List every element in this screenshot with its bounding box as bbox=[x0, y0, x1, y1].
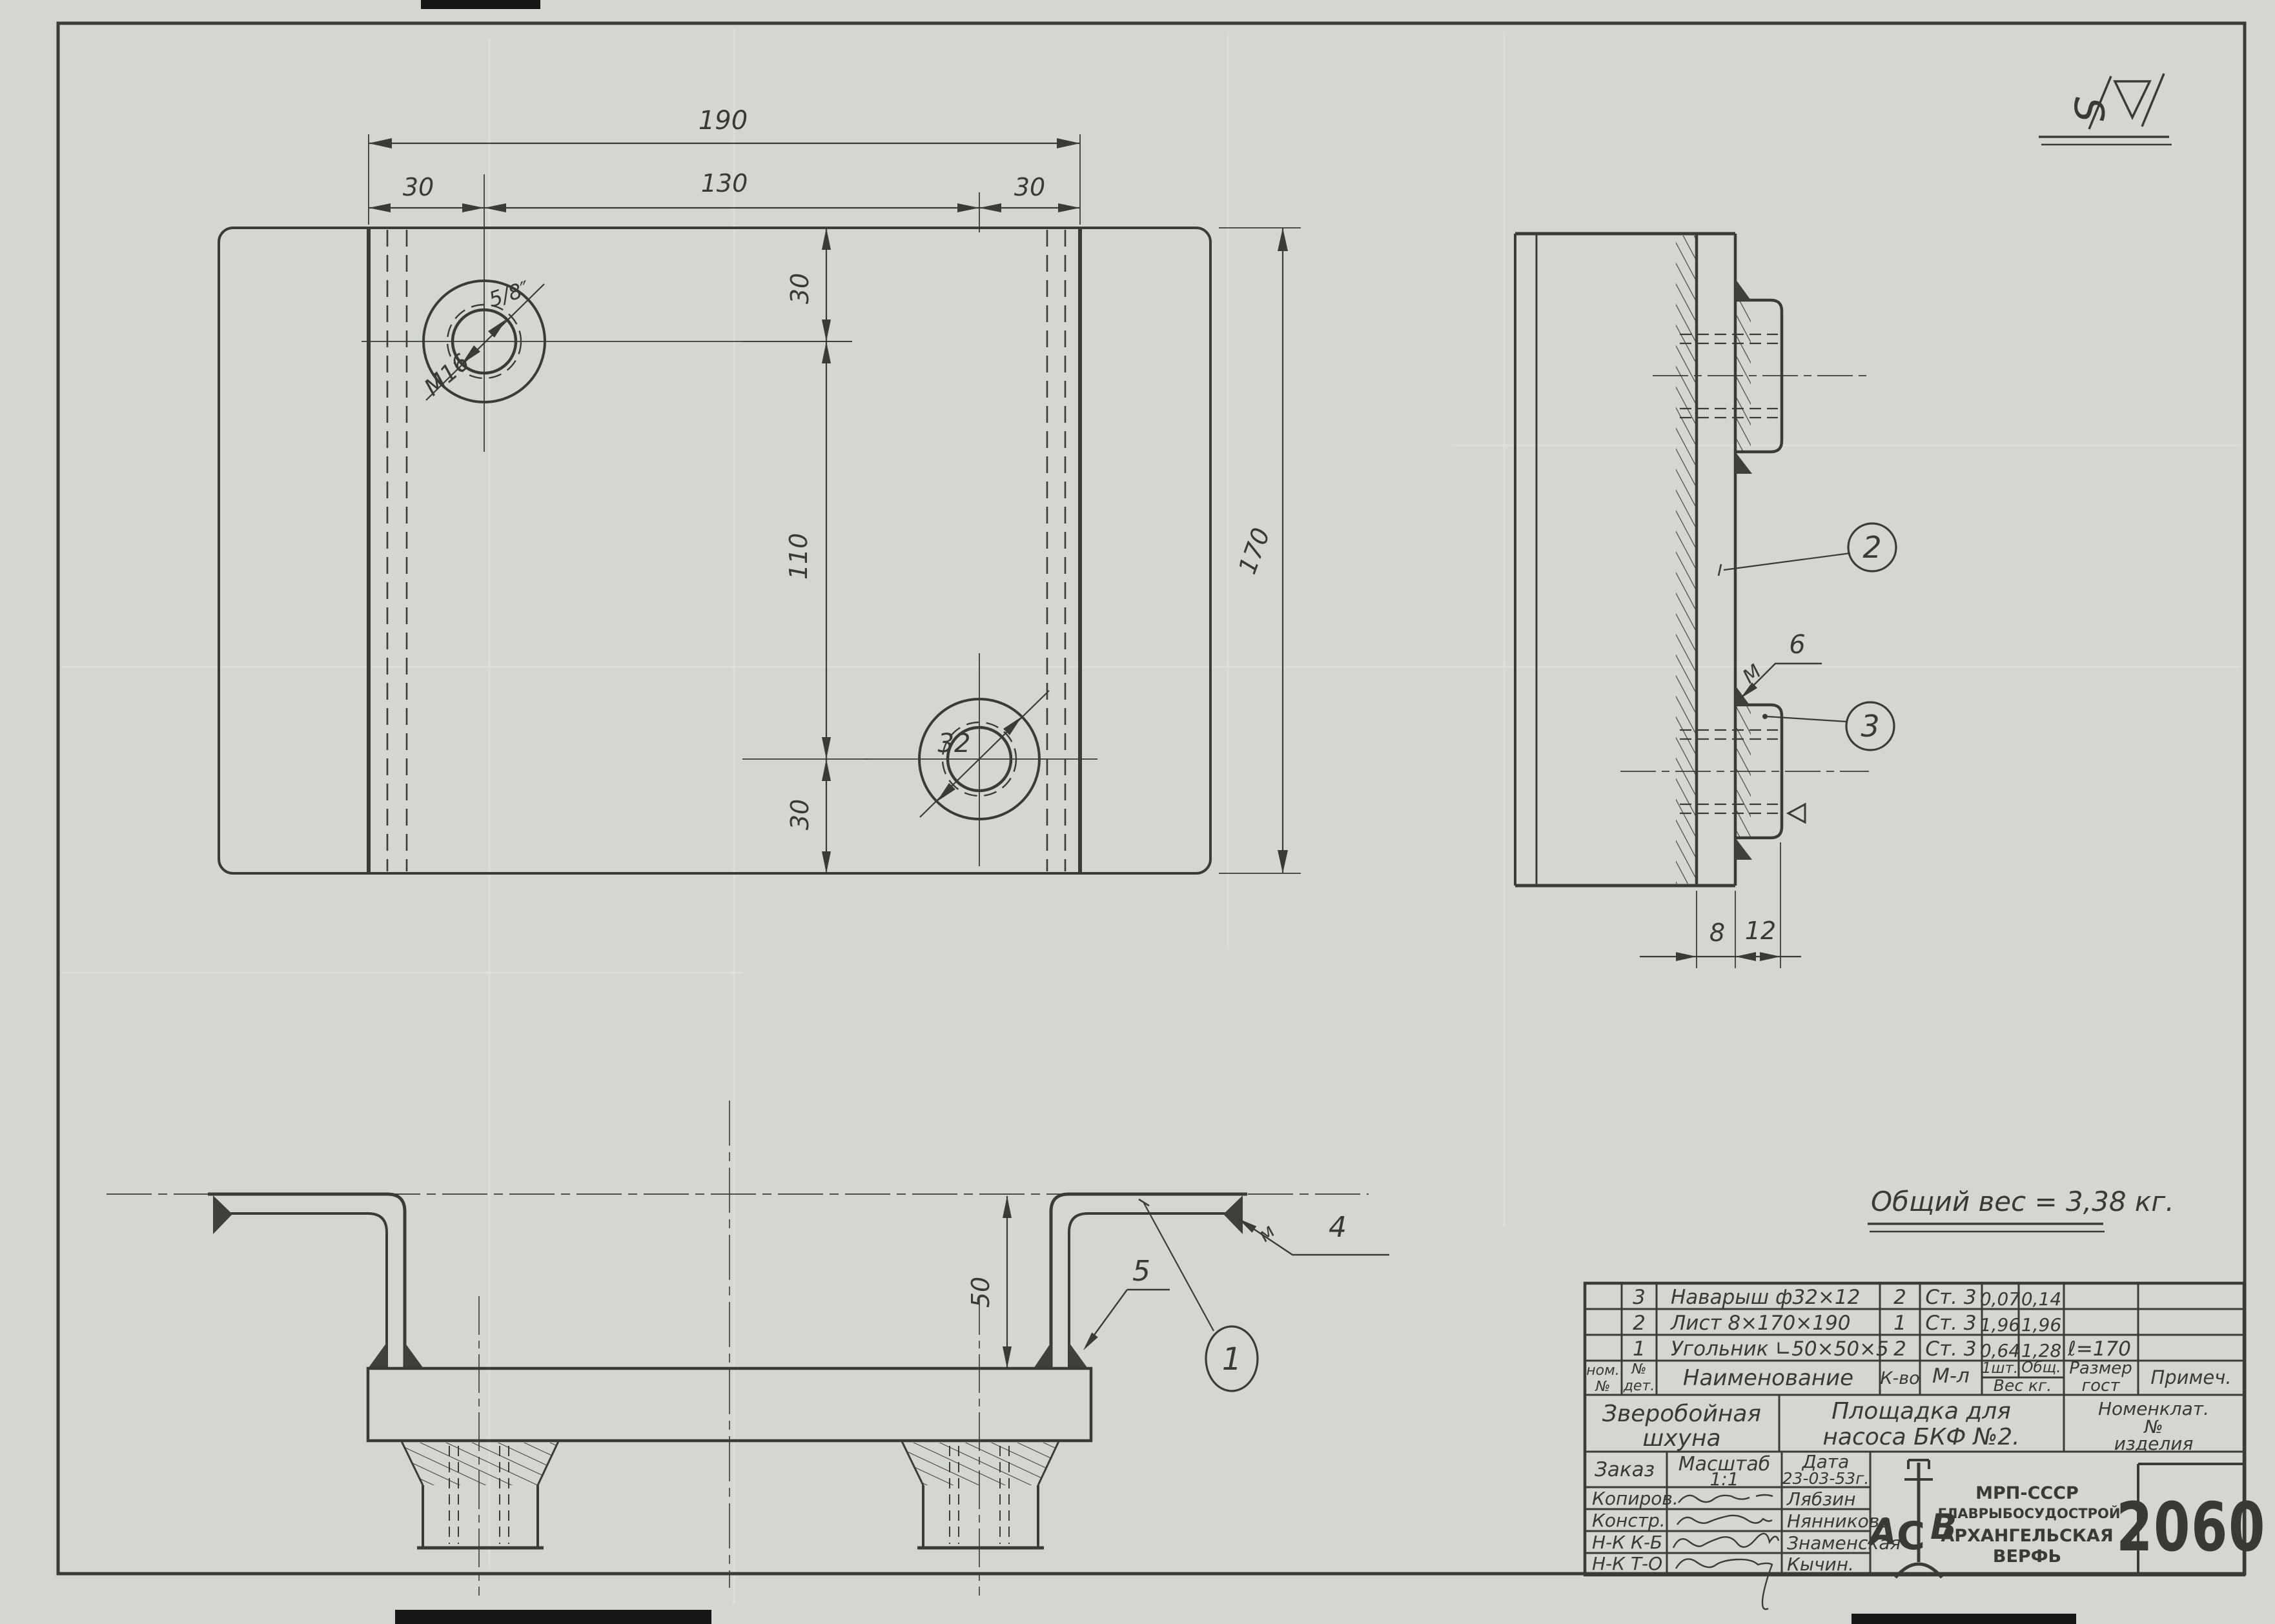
weld-seam-hatch bbox=[1676, 236, 1698, 884]
row-label: Констр. bbox=[1592, 1510, 1666, 1531]
svg-text:30: 30 bbox=[1014, 173, 1045, 201]
part-material: Ст. 3 bbox=[1925, 1337, 1976, 1361]
drawing-sheet: S M16 5/8″ 32 bbox=[0, 0, 2275, 1624]
part-num: 2 bbox=[1633, 1312, 1646, 1335]
svg-text:190: 190 bbox=[699, 106, 748, 136]
part-name: Наварыш ф32×12 bbox=[1671, 1286, 1860, 1309]
svg-text:Общ.: Общ. bbox=[2021, 1359, 2061, 1376]
svg-text:ном.: ном. bbox=[1586, 1363, 1619, 1379]
svg-text:Размер: Размер bbox=[2069, 1359, 2132, 1378]
part-qty: 2 bbox=[1893, 1286, 1906, 1309]
part-weight-total: 1,96 bbox=[2021, 1314, 2061, 1335]
part-name: Лист 8×170×190 bbox=[1670, 1312, 1850, 1335]
svg-text:110: 110 bbox=[784, 533, 813, 580]
part-material: Ст. 3 bbox=[1925, 1286, 1976, 1309]
part-num: 3 bbox=[1633, 1286, 1646, 1309]
svg-text:23-03-53г.: 23-03-53г. bbox=[1782, 1469, 1870, 1488]
part-name: Угольник ∟50×50×5 bbox=[1671, 1337, 1889, 1361]
svg-text:1: 1 bbox=[1222, 1341, 1242, 1377]
project-name: Зверобойная bbox=[1602, 1401, 1761, 1427]
row-name: Кычин. bbox=[1787, 1554, 1854, 1575]
svg-text:гост: гост bbox=[2081, 1376, 2120, 1396]
drawing-number: 2060 bbox=[2116, 1488, 2266, 1567]
svg-text:изделия: изделия bbox=[2114, 1433, 2194, 1454]
part-material: Ст. 3 bbox=[1925, 1312, 1976, 1335]
svg-text:ГЛАВРЫБОСУДОСТРОЙ: ГЛАВРЫБОСУДОСТРОЙ bbox=[1938, 1505, 2121, 1521]
svg-text:50: 50 bbox=[966, 1277, 995, 1308]
svg-text:А: А bbox=[1867, 1512, 1897, 1552]
svg-text:№: № bbox=[1631, 1361, 1647, 1377]
project-name: шхуна bbox=[1642, 1425, 1720, 1452]
svg-text:3: 3 bbox=[1861, 709, 1879, 744]
svg-text:№: № bbox=[1595, 1379, 1611, 1395]
svg-text:ВЕРФЬ: ВЕРФЬ bbox=[1993, 1547, 2061, 1567]
svg-text:К-во: К-во bbox=[1880, 1368, 1919, 1388]
svg-text:6: 6 bbox=[1789, 630, 1805, 660]
drawing-title: насоса БКФ №2. bbox=[1822, 1424, 2019, 1450]
svg-text:30: 30 bbox=[786, 273, 814, 304]
row-name: Лябзин bbox=[1786, 1488, 1856, 1510]
svg-text:Наименование: Наименование bbox=[1683, 1365, 1853, 1391]
part-weight-one: 0,07 bbox=[1980, 1288, 2021, 1310]
drawing-title: Площадка для bbox=[1831, 1398, 2011, 1425]
part-qty: 2 bbox=[1893, 1337, 1906, 1361]
surface-finish-letter: S bbox=[2065, 97, 2112, 122]
part-weight-one: 1,96 bbox=[1980, 1314, 2020, 1335]
svg-text:5: 5 bbox=[1132, 1255, 1150, 1288]
svg-text:30: 30 bbox=[786, 799, 814, 830]
svg-text:30: 30 bbox=[403, 173, 434, 201]
svg-text:Примеч.: Примеч. bbox=[2150, 1366, 2231, 1388]
row-label: Копиров. bbox=[1592, 1488, 1678, 1509]
svg-text:С: С bbox=[1897, 1514, 1925, 1559]
svg-text:12: 12 bbox=[1745, 917, 1776, 945]
svg-text:1шт.: 1шт. bbox=[1982, 1360, 2018, 1377]
svg-text:Общий вес = 3,38 кг.: Общий вес = 3,38 кг. bbox=[1871, 1186, 2174, 1217]
svg-text:М-л: М-л bbox=[1932, 1365, 1970, 1388]
svg-text:дет.: дет. bbox=[1623, 1378, 1655, 1394]
svg-text:Вес кг.: Вес кг. bbox=[1994, 1376, 2052, 1395]
svg-text:2: 2 bbox=[1862, 530, 1881, 565]
part-num: 1 bbox=[1633, 1337, 1646, 1361]
svg-text:130: 130 bbox=[701, 169, 748, 198]
part-qty: 1 bbox=[1893, 1312, 1906, 1335]
svg-text:АРХАНГЕЛЬСКАЯ: АРХАНГЕЛЬСКАЯ bbox=[1941, 1526, 2113, 1546]
part-weight-one: 0,64 bbox=[1980, 1340, 2020, 1361]
svg-text:Заказ: Заказ bbox=[1595, 1458, 1655, 1481]
part-weight-total: 0,14 bbox=[2021, 1288, 2061, 1310]
part-weight-total: 1,28 bbox=[2021, 1340, 2061, 1361]
row-label: Н-К К-Б bbox=[1592, 1532, 1662, 1553]
part-size: ℓ=170 bbox=[2067, 1337, 2131, 1361]
svg-text:4: 4 bbox=[1329, 1211, 1347, 1244]
svg-text:8: 8 bbox=[1709, 919, 1725, 947]
svg-text:МРП-СССР: МРП-СССР bbox=[1975, 1483, 2079, 1503]
svg-text:1:1: 1:1 bbox=[1709, 1468, 1739, 1490]
hole-bottom-label: 32 bbox=[938, 729, 971, 758]
row-label: Н-К Т-О bbox=[1592, 1553, 1662, 1574]
